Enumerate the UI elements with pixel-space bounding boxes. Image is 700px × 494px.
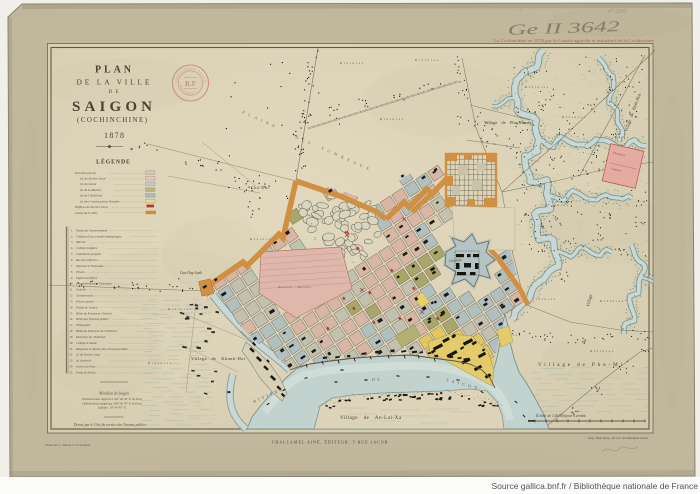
svg-text:Chó-Dui: Chó-Dui [251, 185, 269, 190]
svg-text:Limite de la Ville: Limite de la Ville [74, 211, 98, 215]
svg-text:Marché: Marché [75, 240, 86, 244]
svg-text:13: 13 [69, 299, 73, 303]
svg-text:id. de la Marine: id. de la Marine [80, 188, 102, 192]
svg-text:DE LA VILLE: DE LA VILLE [77, 78, 150, 87]
svg-text:id. à pétrole: id. à pétrole [76, 359, 92, 363]
svg-text:17: 17 [69, 323, 73, 327]
svg-text:18: 18 [69, 329, 73, 333]
svg-text:Village de Phu-Nhuan: Village de Phu-Nhuan [484, 120, 532, 125]
svg-text:Gabelle: Gabelle [76, 288, 87, 292]
svg-text:Imprimerie Nationale: Imprimerie Nationale [75, 264, 104, 268]
svg-text:Palais du Gouvernement: Palais du Gouvernement [75, 228, 107, 232]
svg-text:Rizières: Rizières [148, 361, 173, 365]
svg-text:12: 12 [69, 294, 73, 298]
svg-text:1878: 1878 [104, 131, 124, 140]
svg-text:Méridien de Saïgon: Méridien de Saïgon [99, 392, 129, 396]
svg-text:Collège d’Adran: Collège d’Adran [76, 341, 97, 345]
svg-text:Cau-Ong-Lanh: Cau-Ong-Lanh [180, 271, 202, 275]
svg-text:n° 2301: n° 2301 [608, 8, 627, 15]
svg-text:11: 11 [69, 288, 72, 292]
svg-text:DE: DE [372, 376, 383, 382]
svg-text:16: 16 [69, 317, 73, 321]
svg-text:La Cochinchine en 1878 par le: La Cochinchine en 1878 par le Comité agr… [494, 38, 654, 43]
svg-text:Édifices du Service local: Édifices du Service local [74, 204, 108, 209]
svg-text:(COCHINCHINE): (COCHINCHINE) [77, 116, 148, 124]
svg-text:PLAN: PLAN [95, 65, 132, 76]
svg-text:Château d’eau et puits hydraul: Château d’eau et puits hydrauliques [76, 234, 122, 238]
svg-text:Village de An-Loi-Xa: Village de An-Loi-Xa [340, 416, 402, 421]
svg-text:Palais de Justice: Palais de Justice [75, 305, 98, 309]
svg-text:24: 24 [69, 365, 73, 369]
svg-text:Collège indigène: Collège indigène [76, 246, 98, 250]
svg-text:LÉGENDE: LÉGENDE [96, 158, 131, 166]
svg-text:Rizières: Rizières [380, 117, 405, 121]
svg-text:Dépôt aux filtres: Dépôt aux filtres [75, 276, 98, 280]
svg-text:20: 20 [69, 341, 73, 345]
svg-text:Rizières: Rizières [600, 299, 625, 303]
svg-text:id. du Service local: id. du Service local [80, 177, 106, 181]
svg-text:R.F: R.F [185, 80, 196, 88]
svg-text:Village de Khanh-Hoi: Village de Khanh-Hoi [191, 356, 246, 361]
svg-text:Justice de Paix: Justice de Paix [76, 365, 96, 369]
svg-text:Rizières: Rizières [590, 349, 615, 353]
svg-text:21: 21 [69, 347, 73, 351]
svg-text:Direction de l’Intérieur: Direction de l’Intérieur [75, 335, 106, 339]
svg-text:Enceinte percée: Enceinte percée [74, 171, 97, 175]
svg-text:23: 23 [69, 359, 73, 363]
svg-text:15: 15 [69, 311, 73, 315]
svg-text:22: 22 [69, 353, 73, 357]
svg-text:Hôtel du Procureur Général: Hôtel du Procureur Général [75, 311, 112, 315]
svg-text:id. des Constructions Navales: id. des Constructions Navales [80, 199, 120, 203]
svg-text:Échelle de 1/20.000 pour 4 cen: Échelle de 1/20.000 pour 4 centim. [535, 413, 587, 418]
svg-text:25: 25 [69, 371, 73, 375]
svg-text:Rizières: Rizières [340, 61, 365, 65]
svg-text:19: 19 [69, 335, 73, 339]
svg-text:Magasins et Ateliers des Trava: Magasins et Ateliers des Travaux publics [75, 347, 128, 351]
svg-text:Hôtel du Directeur de l’Intéri: Hôtel du Directeur de l’Intérieur [75, 329, 118, 333]
svg-text:Prison navale: Prison navale [75, 299, 94, 303]
svg-text:id. de l’Artillerie: id. de l’Artillerie [80, 194, 103, 198]
svg-text:Matériaux — Matériaux: Matériaux — Matériaux [277, 286, 312, 289]
svg-text:Rizières: Rizières [415, 58, 440, 62]
svg-text:Prison: Prison [75, 270, 85, 274]
svg-text:id. du Service local: id. du Service local [76, 353, 100, 357]
svg-text:Gendarmerie: Gendarmerie [76, 294, 93, 298]
svg-text:14: 14 [69, 305, 73, 309]
svg-text:Rizières: Rizières [168, 307, 193, 311]
svg-text:Source gallica.bnf.fr / Biblio: Source gallica.bnf.fr / Bibliothèque nat… [492, 481, 699, 491]
svg-text:Poste de Police: Poste de Police [75, 371, 96, 375]
svg-text:Rue des Officiers: Rue des Officiers [75, 258, 98, 262]
svg-text:y ..: y .. [519, 8, 526, 13]
svg-text:Latitude : 10° 46′ 40″ N.: Latitude : 10° 46′ 40″ N. [97, 406, 127, 410]
svg-text:Cathédrale projetée: Cathédrale projetée [76, 252, 102, 256]
svg-text:Enregistrement et Domaines: Enregistrement et Domaines [75, 282, 112, 286]
svg-text:id. du Génie: id. du Génie [80, 182, 97, 186]
svg-text:Rizières: Rizières [525, 85, 550, 89]
svg-text:Dressé par le Chef du service: Dressé par le Chef du service des Travau… [73, 423, 147, 427]
svg-text:Hôtel des Travaux publics: Hôtel des Travaux publics [75, 317, 110, 321]
svg-text:Télégraphe: Télégraphe [76, 323, 91, 327]
